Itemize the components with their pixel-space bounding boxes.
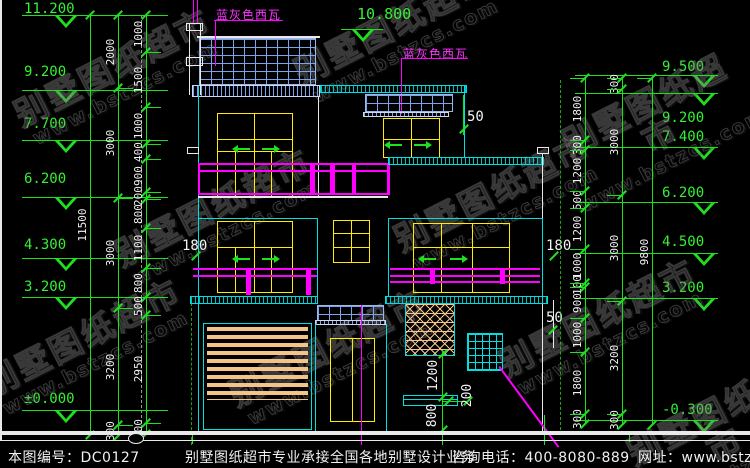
drawing-number: 本图编号：DC0127 xyxy=(8,447,140,467)
axis-grid-line xyxy=(191,303,192,445)
railing-post xyxy=(198,163,200,195)
dim-extension-line xyxy=(575,93,718,94)
leader-diagonal-line xyxy=(498,366,559,448)
eave-slab-left xyxy=(192,85,320,97)
window-rail xyxy=(333,233,370,234)
railing-post xyxy=(310,163,315,195)
dimension-chain-left-outer: 11500 xyxy=(90,15,91,435)
roof-tile-label: 蓝灰色西瓦 xyxy=(403,45,468,62)
window-mullion xyxy=(235,247,236,293)
sash-open-arrow xyxy=(450,258,462,260)
sash-open-arrow xyxy=(390,144,402,146)
railing-post xyxy=(430,268,435,284)
extension-line xyxy=(560,80,561,430)
floor-slab-1f-left xyxy=(190,296,318,304)
frame-border-left xyxy=(0,0,2,441)
railing-post xyxy=(330,163,335,195)
dim-1200: 1200 xyxy=(426,360,441,391)
top-level-marker: 10.800 xyxy=(357,5,411,23)
window-mullion xyxy=(235,151,236,197)
entrance-wall-edge xyxy=(315,324,316,433)
window-2f-left xyxy=(217,113,293,197)
dimension-chain-left-mid: 2000300030003200300 xyxy=(118,15,119,436)
cad-elevation-drawing: 别墅图纸超市www.bstzcs.com 别墅图纸超市www.bstzcs.co… xyxy=(0,0,750,468)
floor-slab-2f-right xyxy=(388,157,544,165)
railing-1f-right xyxy=(390,275,540,277)
sash-open-arrow xyxy=(262,148,274,150)
chimney-flue-line xyxy=(197,0,198,23)
dim-extension-line xyxy=(575,202,718,203)
door-leaf-divider xyxy=(352,338,353,422)
website-text: 网址：www.bstzcs.com xyxy=(638,447,750,467)
railing-post xyxy=(352,163,356,195)
label-underline xyxy=(214,20,283,21)
grid-window xyxy=(467,333,503,371)
window-mullion xyxy=(351,220,352,263)
dimension-chain-left-inner: 1000150010004009002008001100800500295030… xyxy=(146,15,147,434)
window-mullion xyxy=(254,113,255,197)
railing-1f-left xyxy=(193,268,317,270)
balcony-railing-top xyxy=(198,163,390,165)
sash-open-arrow xyxy=(414,144,426,146)
window-rail xyxy=(217,139,293,140)
dim-extension-line xyxy=(575,147,718,148)
dim-180-left: 180 xyxy=(182,238,207,254)
dormer-eave xyxy=(363,112,449,117)
dimension-chain-right-inner: 180030012005001200100010090010001800300 xyxy=(585,78,586,424)
garage-shutter-door xyxy=(207,327,308,400)
dimension-chain-right-mid: 300300030003200300 xyxy=(622,78,623,425)
entrance-wall-edge xyxy=(386,324,387,433)
window-mullion xyxy=(271,151,272,197)
ground-line xyxy=(0,431,750,435)
wall-edge xyxy=(318,97,319,197)
railing-post xyxy=(246,268,251,295)
slab-end-cap xyxy=(537,147,549,154)
label-leader-line xyxy=(215,20,216,66)
window-rail xyxy=(217,247,293,248)
railing-post xyxy=(500,268,505,284)
upper-wall-edge xyxy=(464,85,465,158)
roof-tiles-left xyxy=(199,38,316,85)
railing-post xyxy=(306,268,311,295)
axis-bubble xyxy=(128,433,144,444)
upper-slab-right xyxy=(320,85,467,93)
dim-extension-line xyxy=(575,420,718,421)
level-flag-triangle xyxy=(352,30,374,42)
service-text: 别墅图纸超市专业承接全国各地别墅设计业务 xyxy=(185,447,475,467)
chimney-band xyxy=(186,57,203,66)
dim-800: 800 xyxy=(425,404,440,427)
chimney-cap xyxy=(186,23,203,31)
label-underline xyxy=(401,58,468,59)
balcony-slab-line xyxy=(198,196,388,198)
window-1f-left xyxy=(217,221,293,293)
dim-extension-line xyxy=(575,75,718,76)
balcony-railing-rail xyxy=(198,170,390,172)
dormer-roof-tiles xyxy=(365,94,453,112)
window-mullion xyxy=(271,247,272,293)
railing-post xyxy=(387,163,390,195)
window-rail xyxy=(383,139,440,140)
lattice-panel xyxy=(405,303,455,356)
window-rail xyxy=(217,151,293,152)
sash-open-arrow xyxy=(238,258,250,260)
window-mullion xyxy=(411,118,412,158)
sash-open-arrow xyxy=(238,148,250,150)
dim-extension-line xyxy=(575,298,718,299)
door-axis-line xyxy=(361,305,362,445)
phone-text: 咨询电话：400-8080-889 xyxy=(452,447,630,467)
balcony-railing-bottom xyxy=(198,193,390,195)
railing-1f-right xyxy=(390,281,540,283)
window-rail xyxy=(413,247,510,248)
window-rail xyxy=(333,247,370,248)
chimney-flue-line xyxy=(193,0,194,23)
slab-end-cap xyxy=(187,147,199,154)
frame-border-bottom xyxy=(0,440,750,441)
railing-1f-left xyxy=(193,275,317,277)
dimension-chain-right-outer: 9800 xyxy=(652,78,653,425)
sash-open-arrow xyxy=(424,258,436,260)
sash-open-arrow xyxy=(262,258,274,260)
window-mullion xyxy=(254,221,255,293)
entrance-canopy-eave xyxy=(315,320,386,325)
entrance-canopy-tiles xyxy=(317,305,384,321)
dim-200: 200 xyxy=(460,384,475,407)
dim-50: 50 xyxy=(467,109,484,125)
railing-1f-right xyxy=(390,268,540,270)
